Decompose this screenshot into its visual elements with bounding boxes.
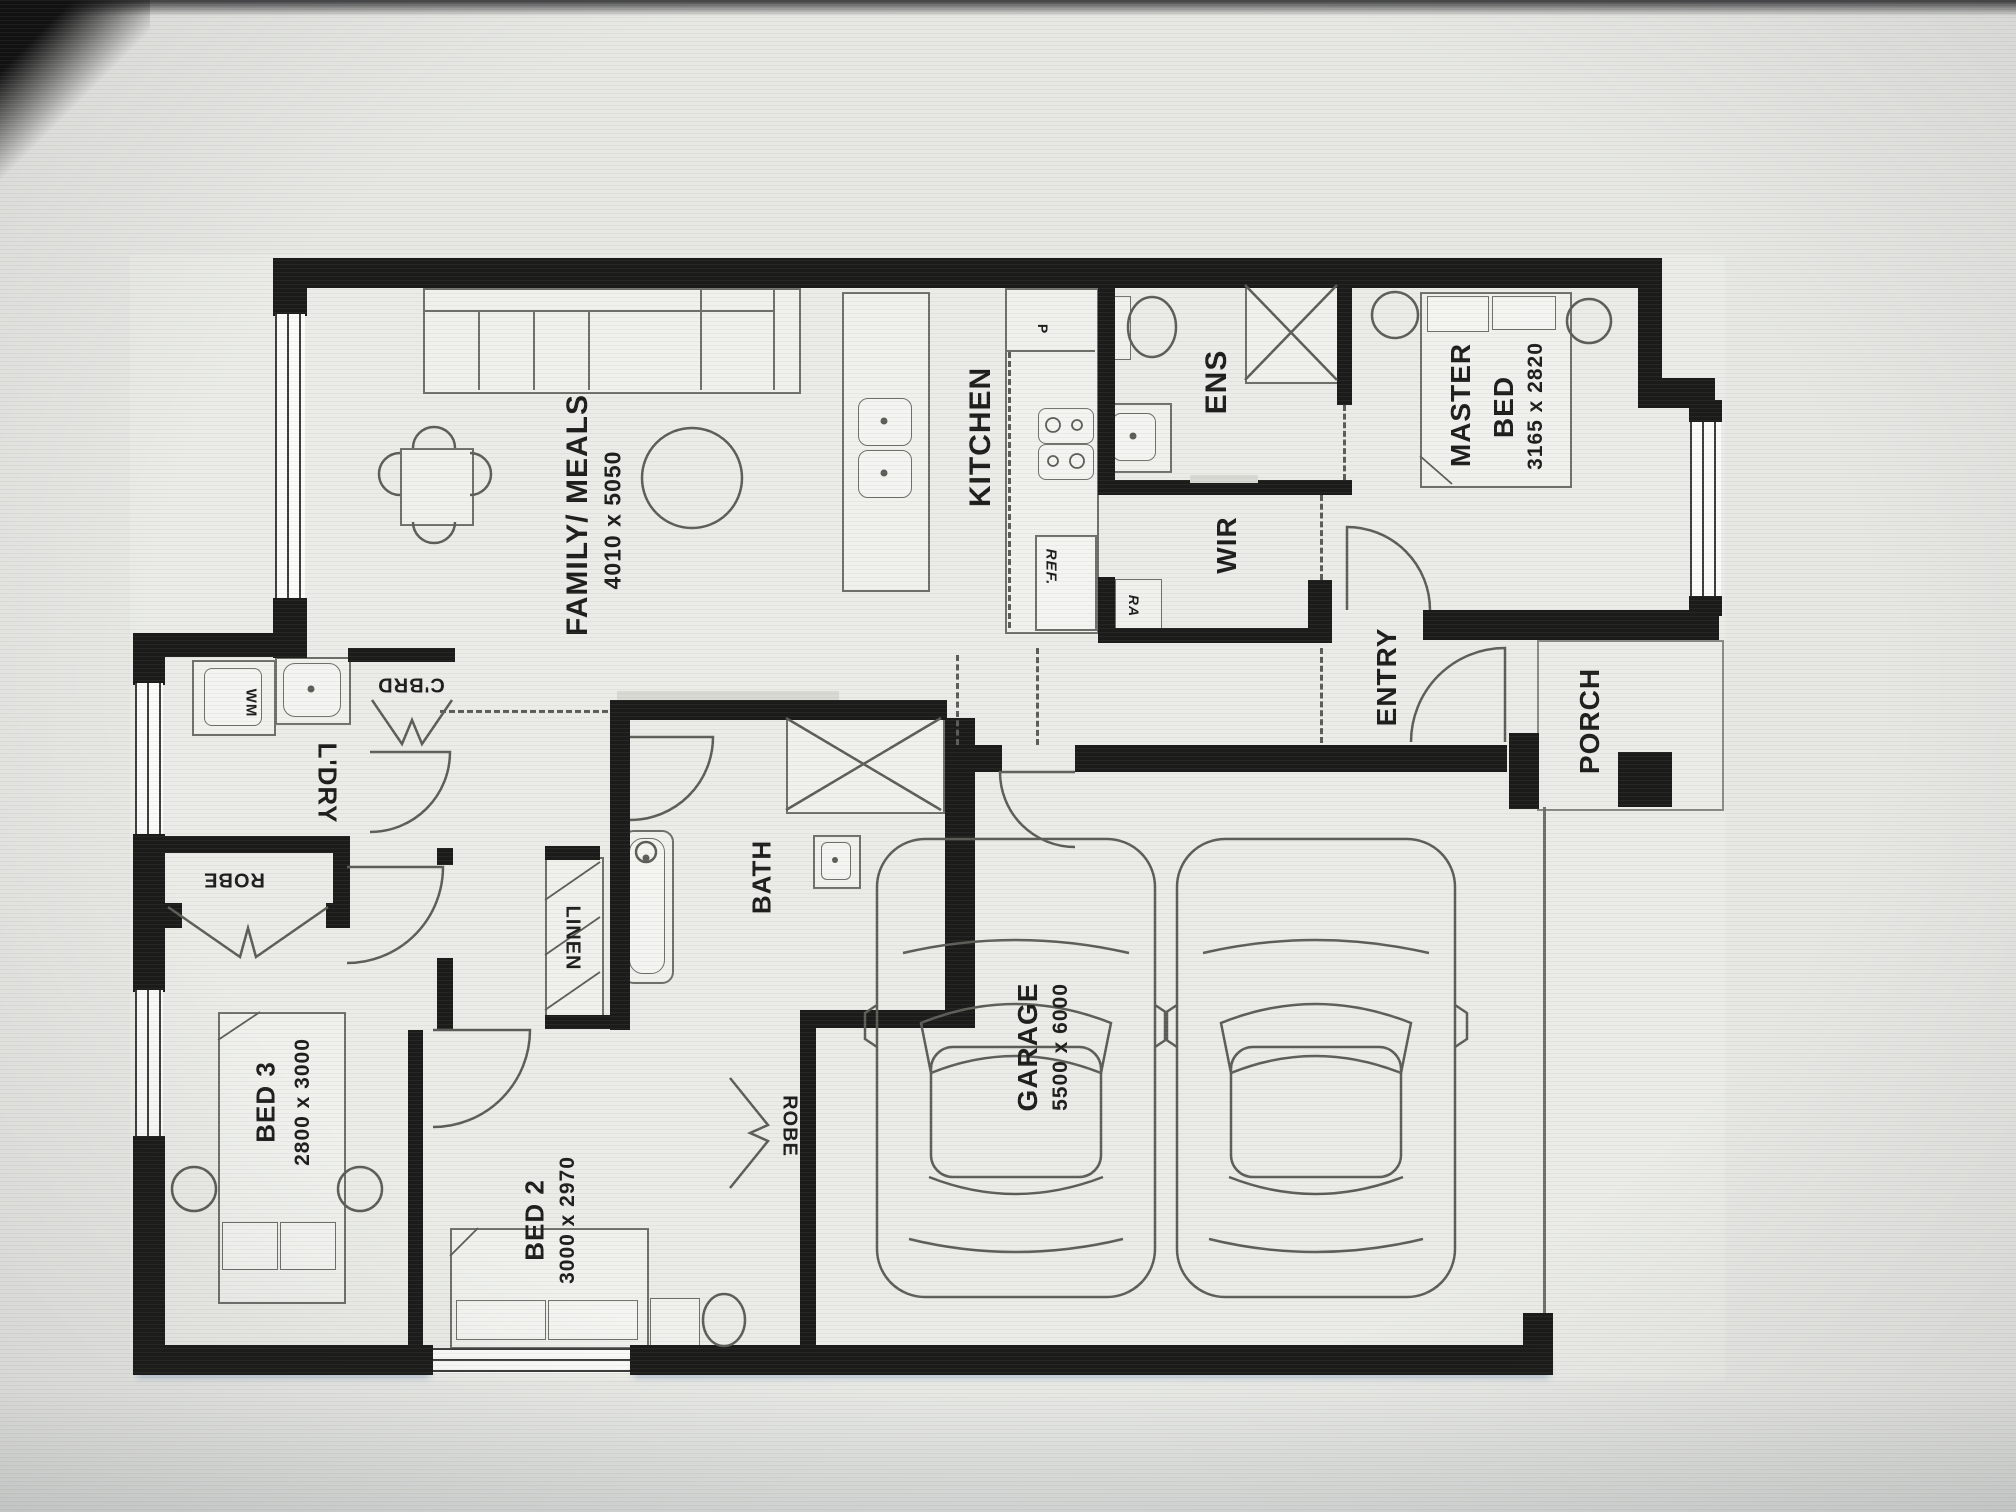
bath-shower — [786, 718, 945, 814]
wall-master-bottom — [1423, 610, 1719, 640]
wall-cbrd-top — [348, 648, 455, 662]
wall-garage-top-a — [975, 745, 1002, 772]
wall-top — [273, 258, 1662, 288]
sofa-div-1 — [478, 310, 480, 390]
dash-hall-2 — [1036, 648, 1039, 745]
bath-basin — [821, 842, 851, 880]
wall-left-a — [133, 652, 165, 685]
wall-bed2-top — [598, 1015, 630, 1029]
wall-robe3-stub-r — [326, 903, 350, 928]
bed3-pillow-2 — [280, 1222, 336, 1270]
dash-wir-opening — [1320, 495, 1323, 580]
wall-bay-top — [1689, 400, 1722, 422]
label-bed3: BED 3 — [251, 1061, 282, 1143]
window-bed2 — [433, 1348, 630, 1373]
dining-table — [400, 448, 474, 526]
wall-bath-garage — [945, 718, 975, 1028]
floor-plan-photo: FAMILY/ MEALS 4010 x 5050 KITCHEN P REF.… — [0, 0, 2016, 1512]
label-return-air: RA — [1126, 595, 1142, 617]
label-master-dims: 3165 x 2820 — [1524, 342, 1548, 470]
wall-ens-master — [1337, 283, 1352, 405]
island-sink-bowl-1 — [858, 398, 912, 446]
label-linen: LINEN — [561, 906, 584, 971]
label-bed2-dims: 3000 x 2970 — [556, 1156, 580, 1284]
wall-ra-left — [1098, 577, 1115, 643]
wall-bath-left — [610, 700, 630, 1030]
label-bed2: BED 2 — [520, 1179, 551, 1261]
photo-top-shadow — [0, 0, 2016, 16]
lintel-family-opening — [617, 691, 839, 700]
sofa-div-3 — [588, 310, 590, 390]
cooktop-lower — [1038, 444, 1094, 480]
label-bed3-dims: 2800 x 3000 — [291, 1038, 315, 1166]
wall-wir-right-stub — [1308, 580, 1332, 628]
dash-hall-1 — [956, 655, 959, 745]
wall-garage-top-b — [1075, 745, 1507, 772]
wall-kitchen-ens — [1098, 283, 1115, 495]
wall-linen-bottom — [545, 1015, 600, 1029]
dash-entry — [1320, 648, 1323, 743]
photo-bottom-shade — [0, 1390, 2016, 1512]
bathtub-inner — [629, 838, 665, 974]
label-fridge: REF. — [1043, 549, 1060, 586]
label-kitchen: KITCHEN — [964, 367, 998, 507]
wall-porch-corner — [1523, 1313, 1553, 1375]
master-pillow-1 — [1427, 296, 1489, 332]
cooktop-upper — [1038, 408, 1094, 444]
wall-bed3-hall — [437, 958, 453, 1030]
wall-bed23-divider — [408, 1030, 423, 1345]
window-laundry — [135, 683, 163, 836]
bed2-pillow-1 — [456, 1300, 546, 1340]
label-robe-bed3: ROBE — [203, 868, 265, 891]
window-family-left — [275, 314, 305, 600]
sofa-arm-right — [773, 288, 775, 390]
island-sink-bowl-2 — [858, 450, 912, 498]
porch-pillar-left — [1509, 733, 1539, 809]
label-pantry: P — [1035, 324, 1051, 334]
label-master-line2: BED — [1488, 376, 1520, 438]
window-bed3 — [135, 990, 163, 1138]
master-pillow-2 — [1492, 296, 1556, 330]
ens-basin — [1112, 413, 1156, 461]
wall-bottom-left — [133, 1345, 433, 1375]
porch-pillar — [1618, 752, 1672, 807]
driveway-edge — [1543, 807, 1546, 1315]
wall-bed3-stub — [437, 848, 453, 865]
wall-left-c — [133, 1136, 165, 1375]
laundry-tub-inner — [283, 663, 341, 717]
wall-garage-step — [800, 1010, 975, 1028]
label-bath: BATH — [747, 840, 778, 914]
dash-ens-master — [1343, 405, 1346, 480]
ens-shower — [1245, 285, 1341, 384]
photo-corner-shadow — [0, 0, 150, 180]
bed2-side-table — [650, 1298, 700, 1346]
wall-family-left-top — [273, 286, 307, 316]
label-entry: ENTRY — [1371, 628, 1403, 727]
wall-bottom-right — [630, 1345, 1553, 1375]
wall-linen-top — [545, 846, 600, 860]
label-master-line1: MASTER — [1445, 343, 1477, 467]
lintel-ens-door — [1190, 475, 1258, 483]
sofa-back-line — [423, 310, 775, 312]
bed2-pillow-2 — [548, 1300, 638, 1340]
label-ens: ENS — [1200, 350, 1234, 415]
label-wm: WM — [243, 689, 260, 718]
wall-wir-bottom — [1113, 628, 1332, 643]
wall-robe3-stub-l — [158, 903, 182, 928]
label-family-meals: FAMILY/ MEALS — [561, 394, 595, 636]
pantry-divider — [1005, 350, 1095, 352]
label-garage-dims: 5500 x 6000 — [1049, 983, 1073, 1111]
label-garage: GARAGE — [1012, 983, 1044, 1112]
label-family-dims: 4010 x 5050 — [600, 451, 627, 590]
label-cupboard: C'BRD — [377, 673, 445, 696]
label-robe-bed2: ROBE — [778, 1095, 801, 1157]
label-wir: WIR — [1211, 516, 1243, 573]
overhead-cupboard-dash — [1008, 352, 1011, 628]
bed3-pillow-1 — [222, 1222, 278, 1270]
wall-family-bath — [610, 700, 947, 720]
sofa-div-4 — [700, 288, 702, 390]
dash-family-hall — [440, 710, 608, 713]
label-porch: PORCH — [1574, 668, 1606, 774]
sofa-div-2 — [533, 310, 535, 390]
wall-garage-left — [800, 1010, 816, 1345]
wall-robe3-divider — [165, 836, 350, 853]
window-master-bay — [1690, 422, 1721, 598]
label-laundry: L'DRY — [312, 743, 343, 824]
